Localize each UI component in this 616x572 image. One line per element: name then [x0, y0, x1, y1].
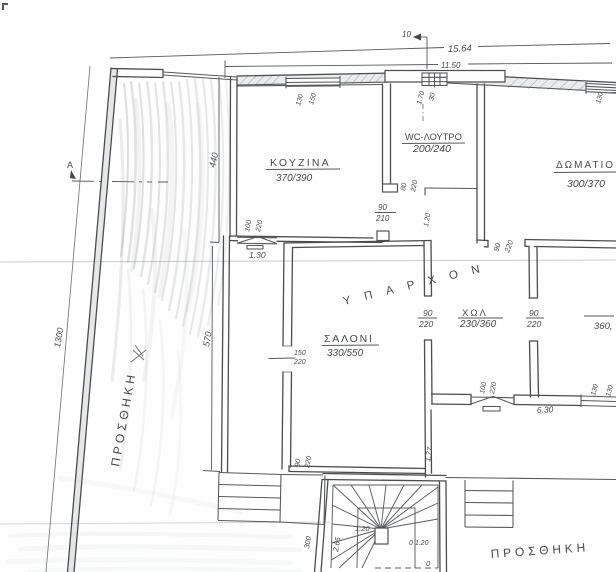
- svg-text:0 1.20: 0 1.20: [409, 540, 429, 547]
- svg-text:ΧΩΛ: ΧΩΛ: [462, 308, 488, 319]
- svg-text:150: 150: [294, 350, 306, 357]
- svg-text:220: 220: [293, 359, 306, 366]
- svg-text:90: 90: [529, 308, 539, 318]
- svg-text:10: 10: [402, 30, 411, 39]
- svg-text:330/550: 330/550: [327, 348, 364, 359]
- svg-text:ΣΑΛΟΝΙ: ΣΑΛΟΝΙ: [324, 333, 374, 345]
- svg-text:210: 210: [375, 214, 390, 223]
- svg-text:1.30: 1.30: [249, 250, 266, 260]
- svg-text:6.30: 6.30: [537, 404, 554, 415]
- svg-text:11.50: 11.50: [441, 61, 461, 70]
- svg-text:A: A: [67, 160, 73, 170]
- svg-text:1.20: 1.20: [355, 524, 370, 533]
- svg-text:90: 90: [423, 308, 433, 318]
- svg-text:90: 90: [378, 203, 387, 212]
- svg-text:370/390: 370/390: [276, 173, 313, 184]
- svg-text:230/360: 230/360: [459, 319, 497, 330]
- svg-text:15.64: 15.64: [448, 43, 472, 55]
- svg-text:360,: 360,: [594, 321, 613, 332]
- svg-text:ΚΟΥΖΙΝΑ: ΚΟΥΖΙΝΑ: [270, 157, 331, 169]
- svg-text:220: 220: [526, 319, 541, 329]
- svg-text:300/370: 300/370: [567, 178, 605, 190]
- svg-text:220: 220: [418, 319, 433, 329]
- svg-text:200/240: 200/240: [412, 143, 451, 155]
- svg-text:ΔΩΜΑΤΙΟ: ΔΩΜΑΤΙΟ: [556, 160, 615, 171]
- svg-text:WC-ΛΟΥΤΡΟ: WC-ΛΟΥΤΡΟ: [405, 132, 462, 142]
